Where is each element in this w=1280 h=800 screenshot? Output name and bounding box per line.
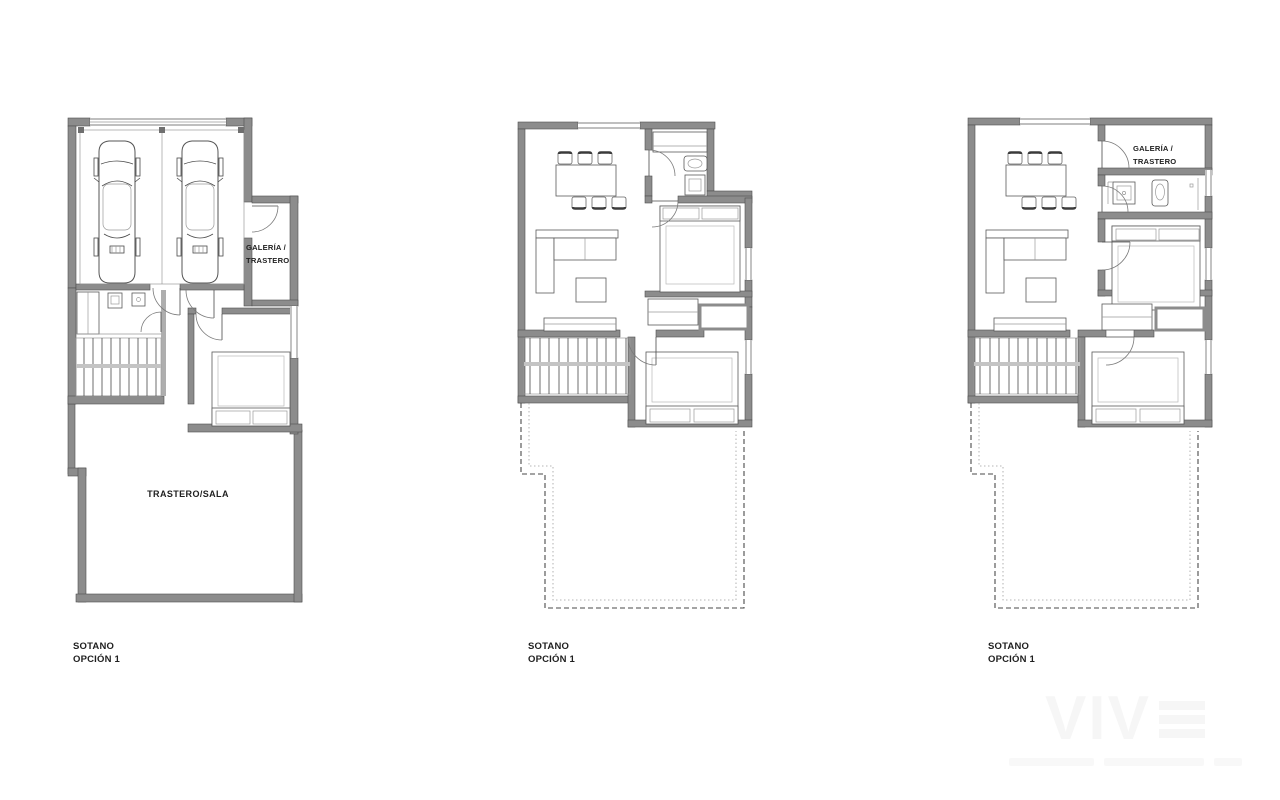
floor-plan-middle: SOTANO OPCIÓN 1 xyxy=(518,122,752,665)
caption-left-2: OPCIÓN 1 xyxy=(73,653,121,665)
wardrobes-middle xyxy=(648,299,748,329)
bedroom2-right xyxy=(1092,352,1184,424)
dining-set-right xyxy=(1006,152,1076,209)
car-1 xyxy=(94,141,140,283)
plot-outline-right xyxy=(971,403,1198,608)
stairs-left xyxy=(76,338,161,396)
room-label-galeria-2: TRASTERO xyxy=(246,256,289,265)
sofa-middle xyxy=(536,230,618,331)
caption-middle-1: SOTANO xyxy=(528,641,569,652)
floor-plan-sheet: GALERÍA / TRASTERO TRASTERO/SALA SOTANO … xyxy=(0,0,1280,800)
floor-plan-right: GALERÍA / TRASTERO SOTANO OPCIÓN 1 xyxy=(968,118,1212,665)
utility-room xyxy=(77,292,161,334)
stairs-right xyxy=(974,338,1080,394)
bedroom1-middle xyxy=(660,206,740,292)
room-label-galeria-right-2: TRASTERO xyxy=(1133,157,1176,166)
room-label-galeria-1: GALERÍA / xyxy=(246,243,287,252)
plot-outline-middle xyxy=(521,403,744,608)
caption-middle-2: OPCIÓN 1 xyxy=(528,653,576,665)
room-label-trastero-sala: TRASTERO/SALA xyxy=(147,489,229,499)
car-2 xyxy=(177,141,223,283)
bathroom-middle xyxy=(653,132,707,195)
floor-plans-drawing: GALERÍA / TRASTERO TRASTERO/SALA SOTANO … xyxy=(0,0,1280,800)
caption-right-1: SOTANO xyxy=(988,641,1029,652)
sofa-right xyxy=(986,230,1068,331)
garage xyxy=(78,127,244,284)
bedroom-left xyxy=(212,352,290,426)
utility-right xyxy=(1108,178,1198,210)
room-label-galeria-right-1: GALERÍA / xyxy=(1133,144,1174,153)
caption-left-1: SOTANO xyxy=(73,641,114,652)
caption-right-2: OPCIÓN 1 xyxy=(988,653,1036,665)
floor-plan-left: GALERÍA / TRASTERO TRASTERO/SALA SOTANO … xyxy=(68,118,302,665)
bedroom2-middle xyxy=(646,352,738,424)
stairs-middle xyxy=(524,338,630,394)
bedroom1-right xyxy=(1112,226,1200,310)
dining-set-middle xyxy=(556,152,626,209)
